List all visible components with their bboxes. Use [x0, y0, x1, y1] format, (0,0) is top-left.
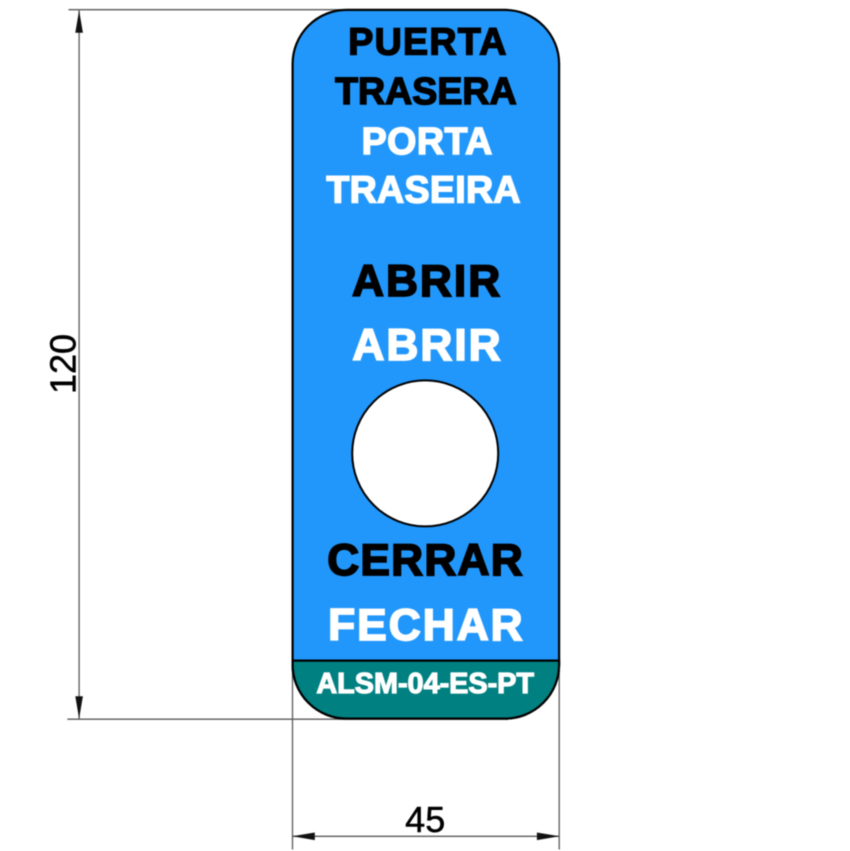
svg-text:120: 120 [43, 334, 84, 394]
svg-text:TRASERA: TRASERA [335, 70, 517, 112]
svg-text:ABRIR: ABRIR [352, 257, 502, 306]
svg-text:FECHAR: FECHAR [328, 601, 525, 650]
svg-text:PUERTA: PUERTA [348, 20, 508, 62]
svg-text:ABRIR: ABRIR [352, 321, 502, 370]
svg-text:45: 45 [405, 799, 445, 840]
svg-text:CERRAR: CERRAR [327, 536, 524, 585]
svg-text:PORTA: PORTA [362, 120, 493, 162]
svg-text:ALSM-04-ES-PT: ALSM-04-ES-PT [316, 668, 534, 700]
svg-text:TRASEIRA: TRASEIRA [326, 169, 520, 211]
